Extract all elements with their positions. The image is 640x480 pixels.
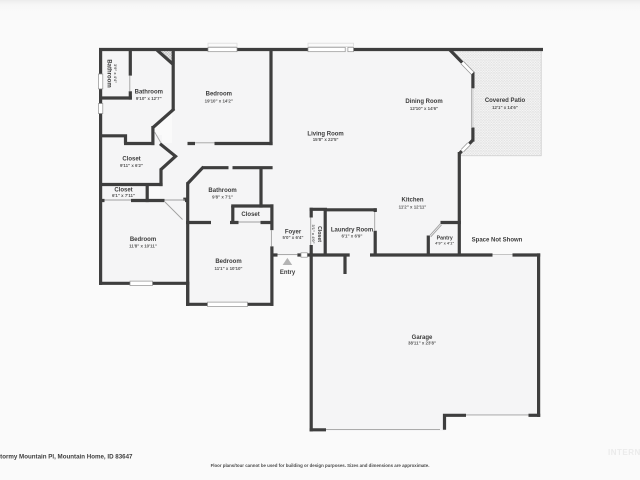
svg-text:15'8" x 22'5": 15'8" x 22'5" — [313, 137, 339, 142]
svg-text:INTERNA: INTERNA — [608, 448, 640, 457]
svg-text:Floor plans/tour cannot be use: Floor plans/tour cannot be used for buil… — [211, 463, 430, 468]
svg-text:Bedroom: Bedroom — [206, 92, 232, 98]
svg-text:Space Not Shown: Space Not Shown — [472, 238, 523, 244]
svg-text:9'10" x 12'7": 9'10" x 12'7" — [136, 96, 162, 101]
svg-text:9'11" x 6'2": 9'11" x 6'2" — [120, 163, 143, 168]
svg-text:4'9" x 4'1": 4'9" x 4'1" — [435, 241, 454, 246]
svg-text:Bedroom: Bedroom — [215, 259, 241, 265]
svg-text:19'10" x 14'2": 19'10" x 14'2" — [205, 98, 233, 103]
svg-text:11'8" x 10'11": 11'8" x 10'11" — [129, 244, 157, 249]
svg-text:Entry: Entry — [280, 270, 296, 276]
svg-text:6'1" x 7'11": 6'1" x 7'11" — [112, 193, 135, 198]
svg-text:Kitchen: Kitchen — [401, 198, 423, 204]
svg-text:38'11" x 23'8": 38'11" x 23'8" — [408, 341, 436, 346]
svg-text:11'2" x 12'11": 11'2" x 12'11" — [399, 205, 427, 210]
svg-text:Bathroom: Bathroom — [208, 188, 236, 194]
svg-text:9'8" x 7'1": 9'8" x 7'1" — [212, 194, 233, 199]
svg-text:3'1" x 4'0": 3'1" x 4'0" — [311, 224, 316, 243]
svg-text:Dining Room: Dining Room — [405, 99, 442, 105]
svg-text:Covered Patio: Covered Patio — [485, 98, 526, 104]
svg-text:Closet: Closet — [241, 212, 259, 218]
svg-text:12'1" x 14'6": 12'1" x 14'6" — [492, 105, 518, 110]
svg-text:Closet: Closet — [122, 157, 140, 163]
svg-text:3'9" x 4'4": 3'9" x 4'4" — [113, 64, 118, 83]
svg-text:Stormy Mountain Pl, Mountain H: Stormy Mountain Pl, Mountain Home, ID 83… — [0, 454, 133, 461]
svg-text:Bedroom: Bedroom — [130, 237, 156, 243]
svg-text:6'1" x 6'9": 6'1" x 6'9" — [342, 234, 363, 239]
svg-text:11'1" x 10'10": 11'1" x 10'10" — [215, 266, 243, 271]
svg-text:Bathroom: Bathroom — [105, 59, 111, 87]
svg-text:5'0" x 6'4": 5'0" x 6'4" — [283, 235, 304, 240]
svg-text:Bathroom: Bathroom — [135, 89, 163, 95]
svg-text:12'10" x 14'6": 12'10" x 14'6" — [410, 106, 438, 111]
